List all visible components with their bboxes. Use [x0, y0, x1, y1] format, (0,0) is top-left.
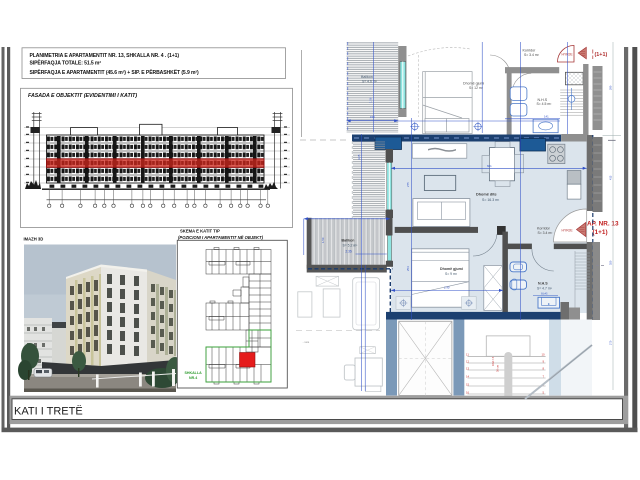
svg-text:60x45: 60x45: [541, 293, 548, 296]
svg-text:S= 9 m²: S= 9 m²: [445, 272, 458, 276]
svg-text:PLANIMETRIA E APARTAMENTIT NR.: PLANIMETRIA E APARTAMENTIT NR. 13, SHKAL…: [30, 53, 180, 59]
svg-text:12: 12: [466, 359, 470, 363]
svg-text:S= 3.4 m²: S= 3.4 m²: [524, 53, 540, 57]
svg-text:...nata: ...nata: [302, 340, 310, 344]
svg-text:AP. NR. 13: AP. NR. 13: [587, 221, 619, 228]
svg-text:N.H.S: N.H.S: [538, 282, 548, 286]
svg-text:1.50: 1.50: [321, 237, 325, 243]
svg-text:S= 16.3 m²: S= 16.3 m²: [482, 198, 500, 202]
svg-text:16x17.5: 16x17.5: [491, 356, 495, 366]
svg-text:275: 275: [406, 182, 410, 187]
svg-text:SIPËRFAQJA E APARTAMENTIT (45.: SIPËRFAQJA E APARTAMENTIT (45.6 m²) + SI…: [30, 69, 200, 76]
svg-text:NR.4: NR.4: [189, 376, 197, 380]
svg-text:601: 601: [487, 164, 492, 168]
svg-text:Dhomë gjumi: Dhomë gjumi: [440, 267, 463, 271]
svg-text:(1+1): (1+1): [595, 52, 608, 58]
svg-text:FASADA E OBJEKTIT (EVIDENTIMI: FASADA E OBJEKTIT (EVIDENTIMI I KATIT): [28, 93, 137, 99]
svg-text:KATI I TRETË: KATI I TRETË: [14, 406, 83, 418]
svg-text:4.65: 4.65: [357, 154, 361, 160]
svg-text:270: 270: [609, 340, 613, 345]
svg-text:SKEMA E KATIT TIP: SKEMA E KATIT TIP: [180, 229, 220, 234]
svg-text:141: 141: [544, 115, 549, 119]
svg-text:S= 12 m²: S= 12 m²: [469, 86, 484, 90]
svg-text:S= 4.6 m²: S= 4.6 m²: [362, 80, 378, 84]
svg-text:30 cm: 30 cm: [496, 365, 500, 372]
svg-text:SIPËRFAQJA TOTALE: 51.5 m²: SIPËRFAQJA TOTALE: 51.5 m²: [30, 60, 102, 67]
svg-text:Dhomë dite: Dhomë dite: [476, 193, 497, 197]
svg-text:IMAZH 3D: IMAZH 3D: [24, 237, 44, 242]
svg-text:Ballkon: Ballkon: [361, 75, 373, 79]
svg-text:14: 14: [466, 374, 470, 378]
svg-text:16: 16: [466, 390, 470, 394]
svg-text:Ballkon: Ballkon: [342, 239, 355, 243]
svg-text:15: 15: [466, 382, 470, 386]
svg-text:HYRJE: HYRJE: [562, 228, 574, 232]
svg-text:290: 290: [609, 85, 613, 90]
svg-text:S= 4.7 m²: S= 4.7 m²: [537, 286, 553, 290]
svg-text:350: 350: [609, 260, 613, 265]
svg-text:2.90: 2.90: [443, 286, 450, 290]
svg-text:1.56: 1.56: [369, 97, 373, 103]
svg-text:S= 4.5 m²: S= 4.5 m²: [537, 102, 553, 106]
svg-text:13: 13: [466, 366, 470, 370]
svg-text:150: 150: [370, 115, 375, 119]
svg-text:(POZICIONI I APARTAMENTIT NË O: (POZICIONI I APARTAMENTIT NË OBJEKT): [178, 235, 264, 240]
svg-text:415: 415: [609, 175, 613, 180]
svg-text:Dhomë gjumi: Dhomë gjumi: [463, 82, 484, 86]
svg-text:S= 5.2 m²: S= 5.2 m²: [343, 243, 359, 247]
svg-text:(1+1): (1+1): [593, 229, 608, 236]
svg-text:10: 10: [542, 353, 546, 357]
svg-text:S= 3.4 m²: S= 3.4 m²: [538, 231, 554, 235]
svg-text:2.36: 2.36: [346, 250, 352, 254]
svg-text:SHKALLA: SHKALLA: [185, 371, 203, 375]
svg-text:Korridor: Korridor: [537, 227, 551, 231]
svg-text:11: 11: [466, 353, 469, 357]
svg-text:Korridor: Korridor: [523, 49, 537, 53]
svg-text:254: 254: [406, 266, 410, 271]
svg-text:N.H.S: N.H.S: [538, 98, 548, 102]
